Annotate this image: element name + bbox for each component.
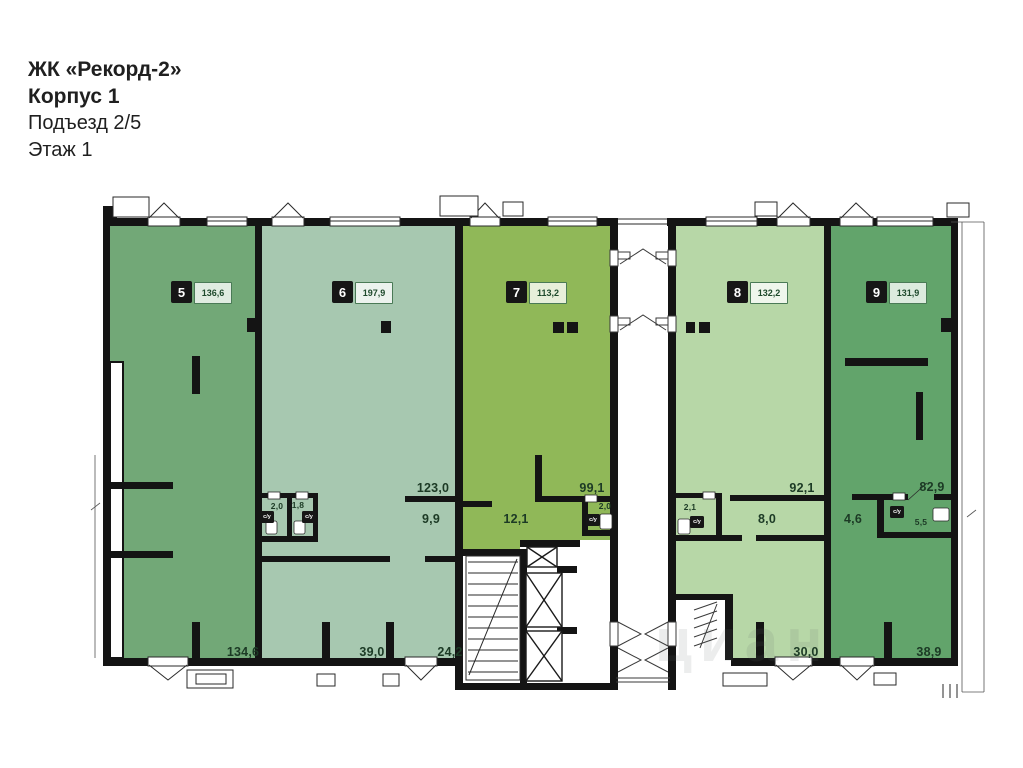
building-name: Корпус 1 — [28, 83, 182, 110]
room-area-label: 1,8 — [292, 500, 304, 510]
watermark: циан — [655, 606, 830, 675]
room-area-label: 4,6 — [844, 512, 862, 526]
unit-9-area-chip: 131,9 — [889, 282, 927, 304]
unit-6-area-chip: 197,9 — [355, 282, 393, 304]
wc-badge: с/у — [690, 516, 704, 528]
unit-8-area-chip: 132,2 — [750, 282, 788, 304]
room-area-label: 99,1 — [579, 481, 604, 495]
wc-badge: с/у — [586, 514, 600, 526]
wc-badge: с/у — [302, 511, 316, 523]
room-area-label: 8,0 — [758, 512, 776, 526]
unit-5-area-chip: 136,6 — [194, 282, 232, 304]
elevators — [526, 547, 562, 681]
unit-5-badge: 5 136,6 — [171, 281, 232, 303]
title-block: ЖК «Рекорд-2» Корпус 1 Подъезд 2/5 Этаж … — [28, 56, 182, 164]
unit-7-badge: 7 113,2 — [506, 281, 567, 303]
stairwell — [466, 556, 520, 680]
room-area-label: 9,9 — [422, 512, 440, 526]
wc-badge: с/у — [890, 506, 904, 518]
unit-9-badge: 9 131,9 — [866, 281, 927, 303]
room-area-label: 2,1 — [684, 502, 696, 512]
room-area-label: 24,2 — [437, 645, 462, 659]
entrance-label: Подъезд 2/5 — [28, 110, 182, 137]
room-area-label: 92,1 — [789, 481, 814, 495]
room-area-label: 2,0 — [271, 501, 283, 511]
unit-7-number: 7 — [506, 281, 527, 303]
room-area-label: 38,9 — [916, 645, 941, 659]
room-area-label: 5,5 — [915, 517, 927, 527]
room-area-label: 82,9 — [919, 480, 944, 494]
room-area-label: 134,6 — [227, 645, 259, 659]
unit-9-number: 9 — [866, 281, 887, 303]
white-insets — [110, 362, 123, 658]
room-area-label: 12,1 — [503, 512, 528, 526]
room-area-label: 2,0 — [599, 501, 611, 511]
unit-6-badge: 6 197,9 — [332, 281, 393, 303]
room-area-label: 30,0 — [793, 645, 818, 659]
unit-6-number: 6 — [332, 281, 353, 303]
unit-8-badge: 8 132,2 — [727, 281, 788, 303]
room-area-label: 123,0 — [417, 481, 449, 495]
unit-7-area-chip: 113,2 — [529, 282, 567, 304]
left-duct — [110, 362, 123, 658]
complex-name: ЖК «Рекорд-2» — [28, 56, 182, 83]
floorplan-page: циан ЖК «Рекорд-2» Корпус 1 Подъезд 2/5 … — [0, 0, 1023, 768]
wc-badge: с/у — [260, 511, 274, 523]
unit-5-number: 5 — [171, 281, 192, 303]
floor-label: Этаж 1 — [28, 137, 182, 164]
room-area-label: 39,0 — [359, 645, 384, 659]
unit-8-number: 8 — [727, 281, 748, 303]
